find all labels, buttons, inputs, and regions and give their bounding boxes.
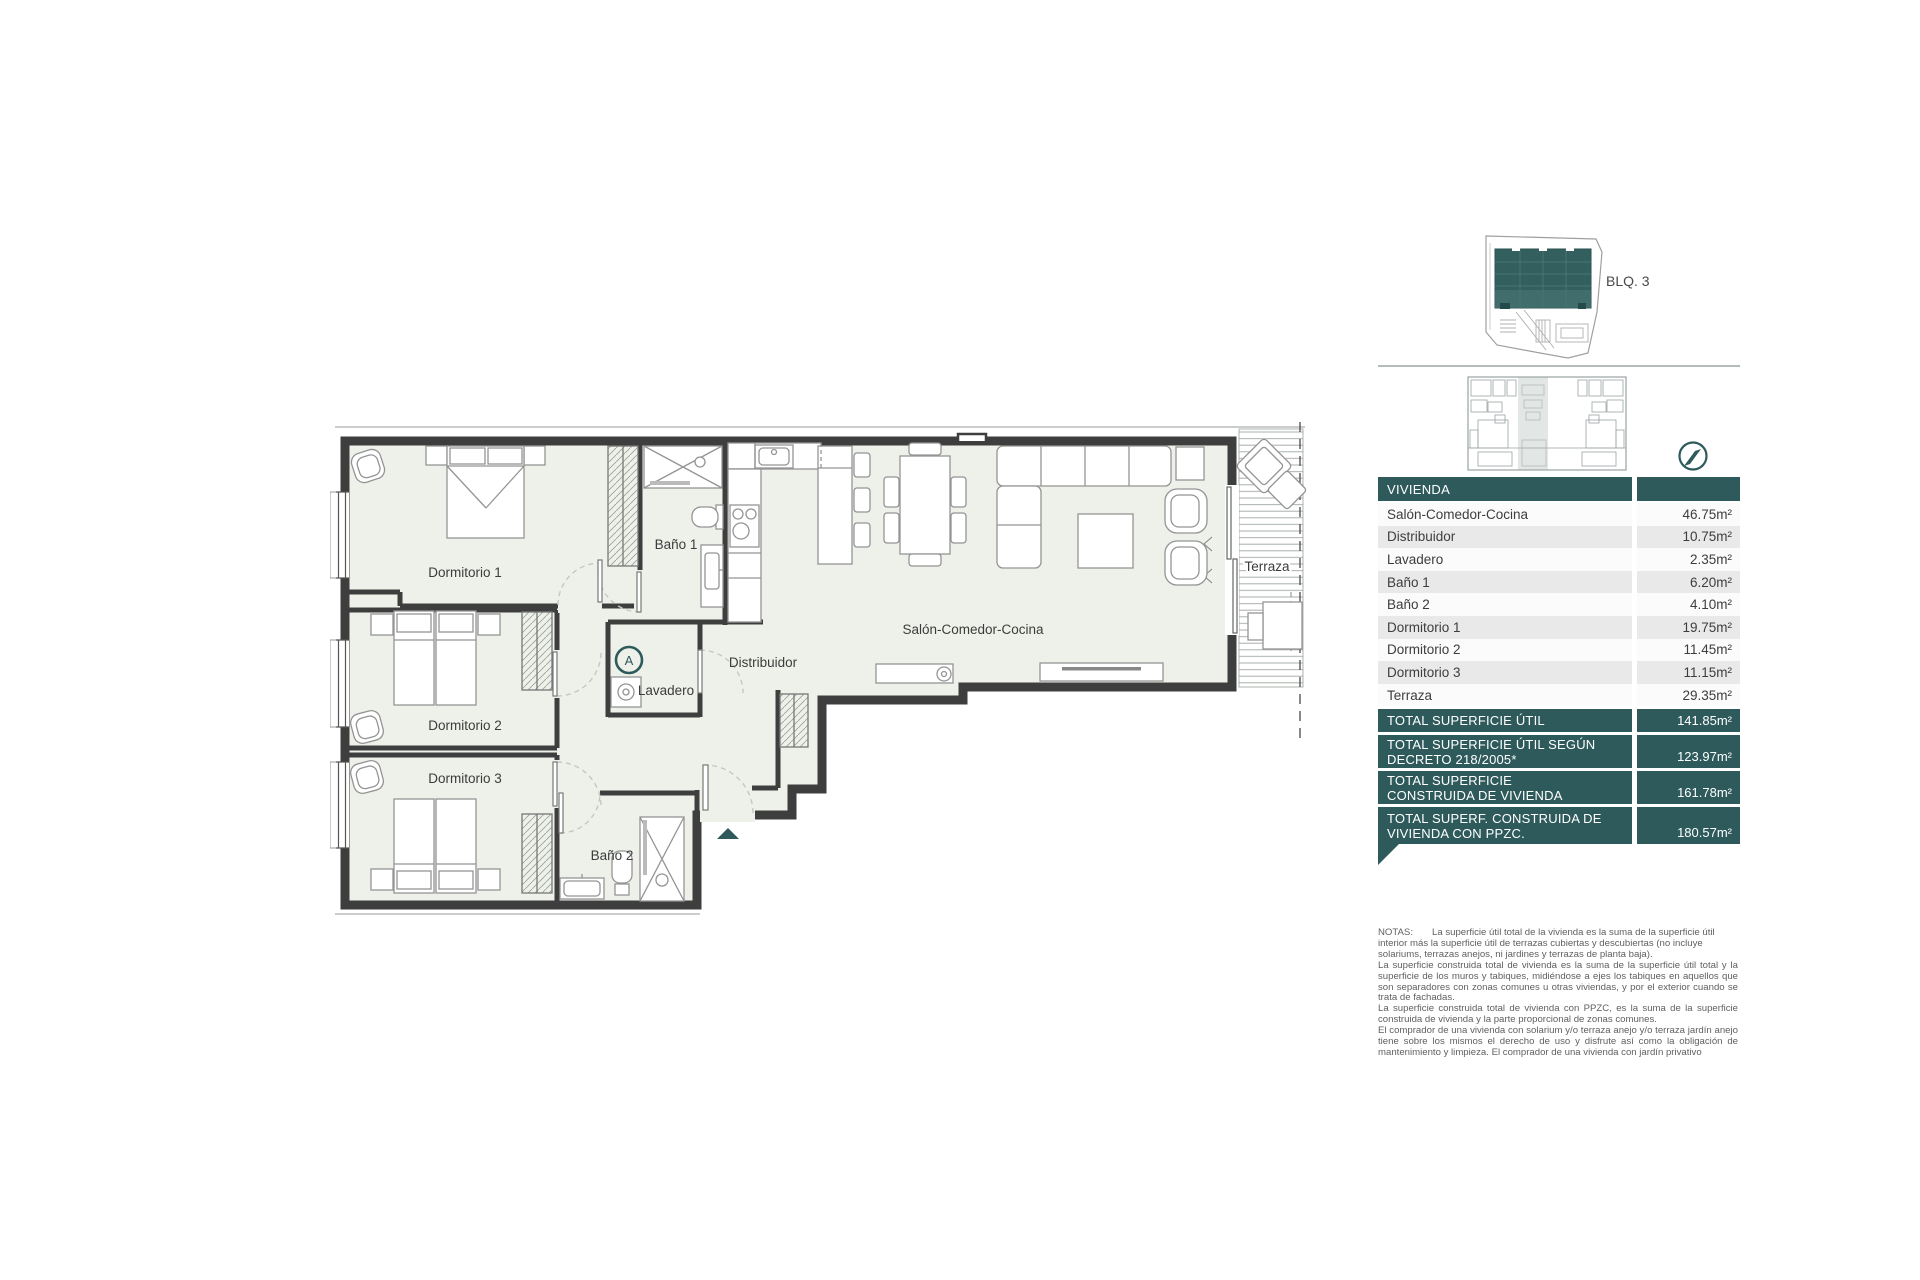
total-row: TOTAL SUPERFICIECONSTRUIDA DE VIVIENDA 1… [1378, 771, 1740, 804]
dormitorio-3-label: Dormitorio 3 [428, 771, 502, 786]
bano1-toilet [692, 505, 723, 529]
unit-a-marker: A [616, 647, 642, 673]
table-row: Dormitorio 1 19.75m² [1378, 616, 1740, 639]
armchair-2 [1165, 541, 1207, 585]
dorm1-wardrobe [608, 446, 638, 566]
entrance-arrow-icon [717, 828, 739, 839]
lavadero-label: Lavadero [638, 683, 694, 698]
notes-paragraph: NOTAS:La superficie útil total de la viv… [1378, 928, 1738, 961]
areas-table: VIVIENDA Salón-Comedor-Cocina 46.75m² Di… [1378, 477, 1740, 865]
dormitorio-2-label: Dormitorio 2 [428, 718, 502, 733]
dormitorio-1-label: Dormitorio 1 [428, 565, 502, 580]
washing-machine [611, 677, 641, 707]
distribuidor-label: Distribuidor [729, 655, 798, 670]
site-plan: BLQ. 3 [1450, 222, 1750, 372]
sideboard [876, 664, 953, 683]
building-block [1495, 246, 1591, 309]
table-row: Baño 1 6.20m² [1378, 571, 1740, 594]
svg-text:A: A [625, 653, 634, 668]
tv-bench [1040, 663, 1163, 681]
table-tail [1378, 844, 1399, 865]
table-row: Distribuidor 10.75m² [1378, 526, 1740, 549]
sidebar-divider [1378, 365, 1740, 367]
bano1-sink [701, 545, 723, 607]
table-row: Baño 2 4.10m² [1378, 593, 1740, 616]
sofa-side-table [1176, 447, 1204, 480]
table-row: Salón-Comedor-Cocina 46.75m² [1378, 503, 1740, 526]
floor-plan: A Dormitorio 1 Baño 1 Dormitorio 2 Dormi… [330, 415, 1325, 945]
terraza-label: Terraza [1244, 559, 1290, 574]
coffee-table [1078, 514, 1133, 568]
bano1-shower [644, 446, 722, 488]
north-compass-icon [1680, 443, 1707, 470]
table-row: Terraza 29.35m² [1378, 684, 1740, 707]
bano-1-label: Baño 1 [655, 537, 698, 552]
salon-label: Salón-Comedor-Cocina [902, 622, 1044, 637]
dorm2-wardrobe [522, 612, 552, 690]
windows [330, 492, 349, 848]
armchair-1 [1165, 489, 1207, 533]
table-header-value [1637, 477, 1740, 501]
table-row: Lavadero 2.35m² [1378, 548, 1740, 571]
bano2-shower [640, 817, 684, 901]
table-row: Dormitorio 3 11.15m² [1378, 661, 1740, 684]
table-row: Dormitorio 2 11.45m² [1378, 639, 1740, 662]
table-header: VIVIENDA [1378, 477, 1740, 501]
key-plan-drawing [1468, 377, 1626, 470]
kitchen-island [818, 443, 870, 564]
total-row: TOTAL SUPERFICIE ÚTIL SEGÚNDECRETO 218/2… [1378, 735, 1740, 768]
bano2-sink [560, 874, 604, 899]
notes-paragraph: La superficie construida total de vivien… [1378, 1004, 1738, 1026]
table-header-label: VIVIENDA [1378, 477, 1632, 501]
notes-paragraph: La superficie construida total de vivien… [1378, 961, 1738, 1005]
notes-block: NOTAS:La superficie útil total de la viv… [1378, 928, 1738, 1059]
brochure-page: A Dormitorio 1 Baño 1 Dormitorio 2 Dormi… [0, 0, 1920, 1280]
wall-notch [958, 434, 986, 441]
bano-2-label: Baño 2 [591, 848, 634, 863]
dorm3-wardrobe [522, 814, 552, 893]
notes-paragraph: El comprador de una vivienda con solariu… [1378, 1026, 1738, 1059]
total-row: TOTAL SUPERFICIE ÚTIL 141.85m² [1378, 709, 1740, 732]
floor-key-plan [1378, 371, 1740, 477]
block-label: BLQ. 3 [1606, 273, 1650, 289]
hall-closet [780, 694, 808, 747]
total-row: TOTAL SUPERF. CONSTRUIDA DEVIVIENDA CON … [1378, 807, 1740, 844]
